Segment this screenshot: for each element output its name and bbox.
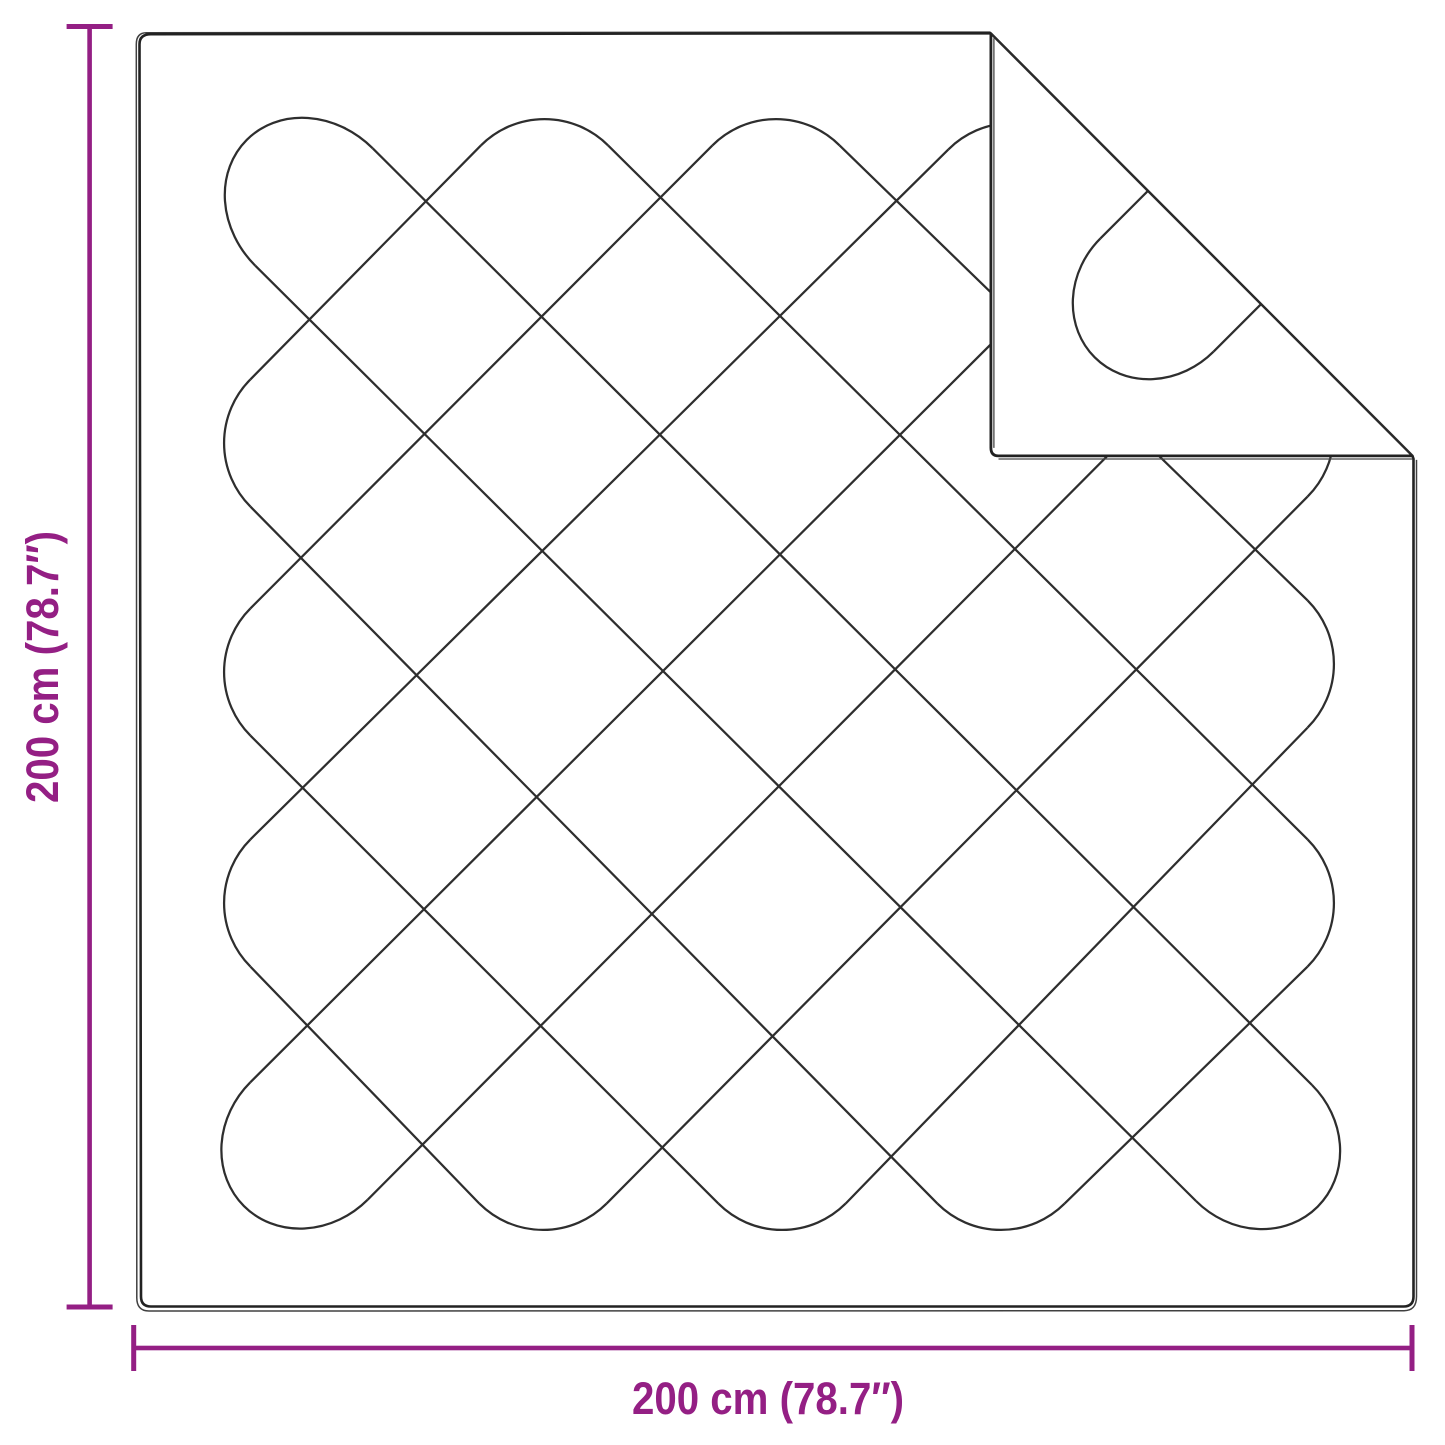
svg-text:200 cm (78.7″): 200 cm (78.7″) [632, 1373, 904, 1424]
svg-text:200 cm (78.7″): 200 cm (78.7″) [17, 531, 68, 803]
